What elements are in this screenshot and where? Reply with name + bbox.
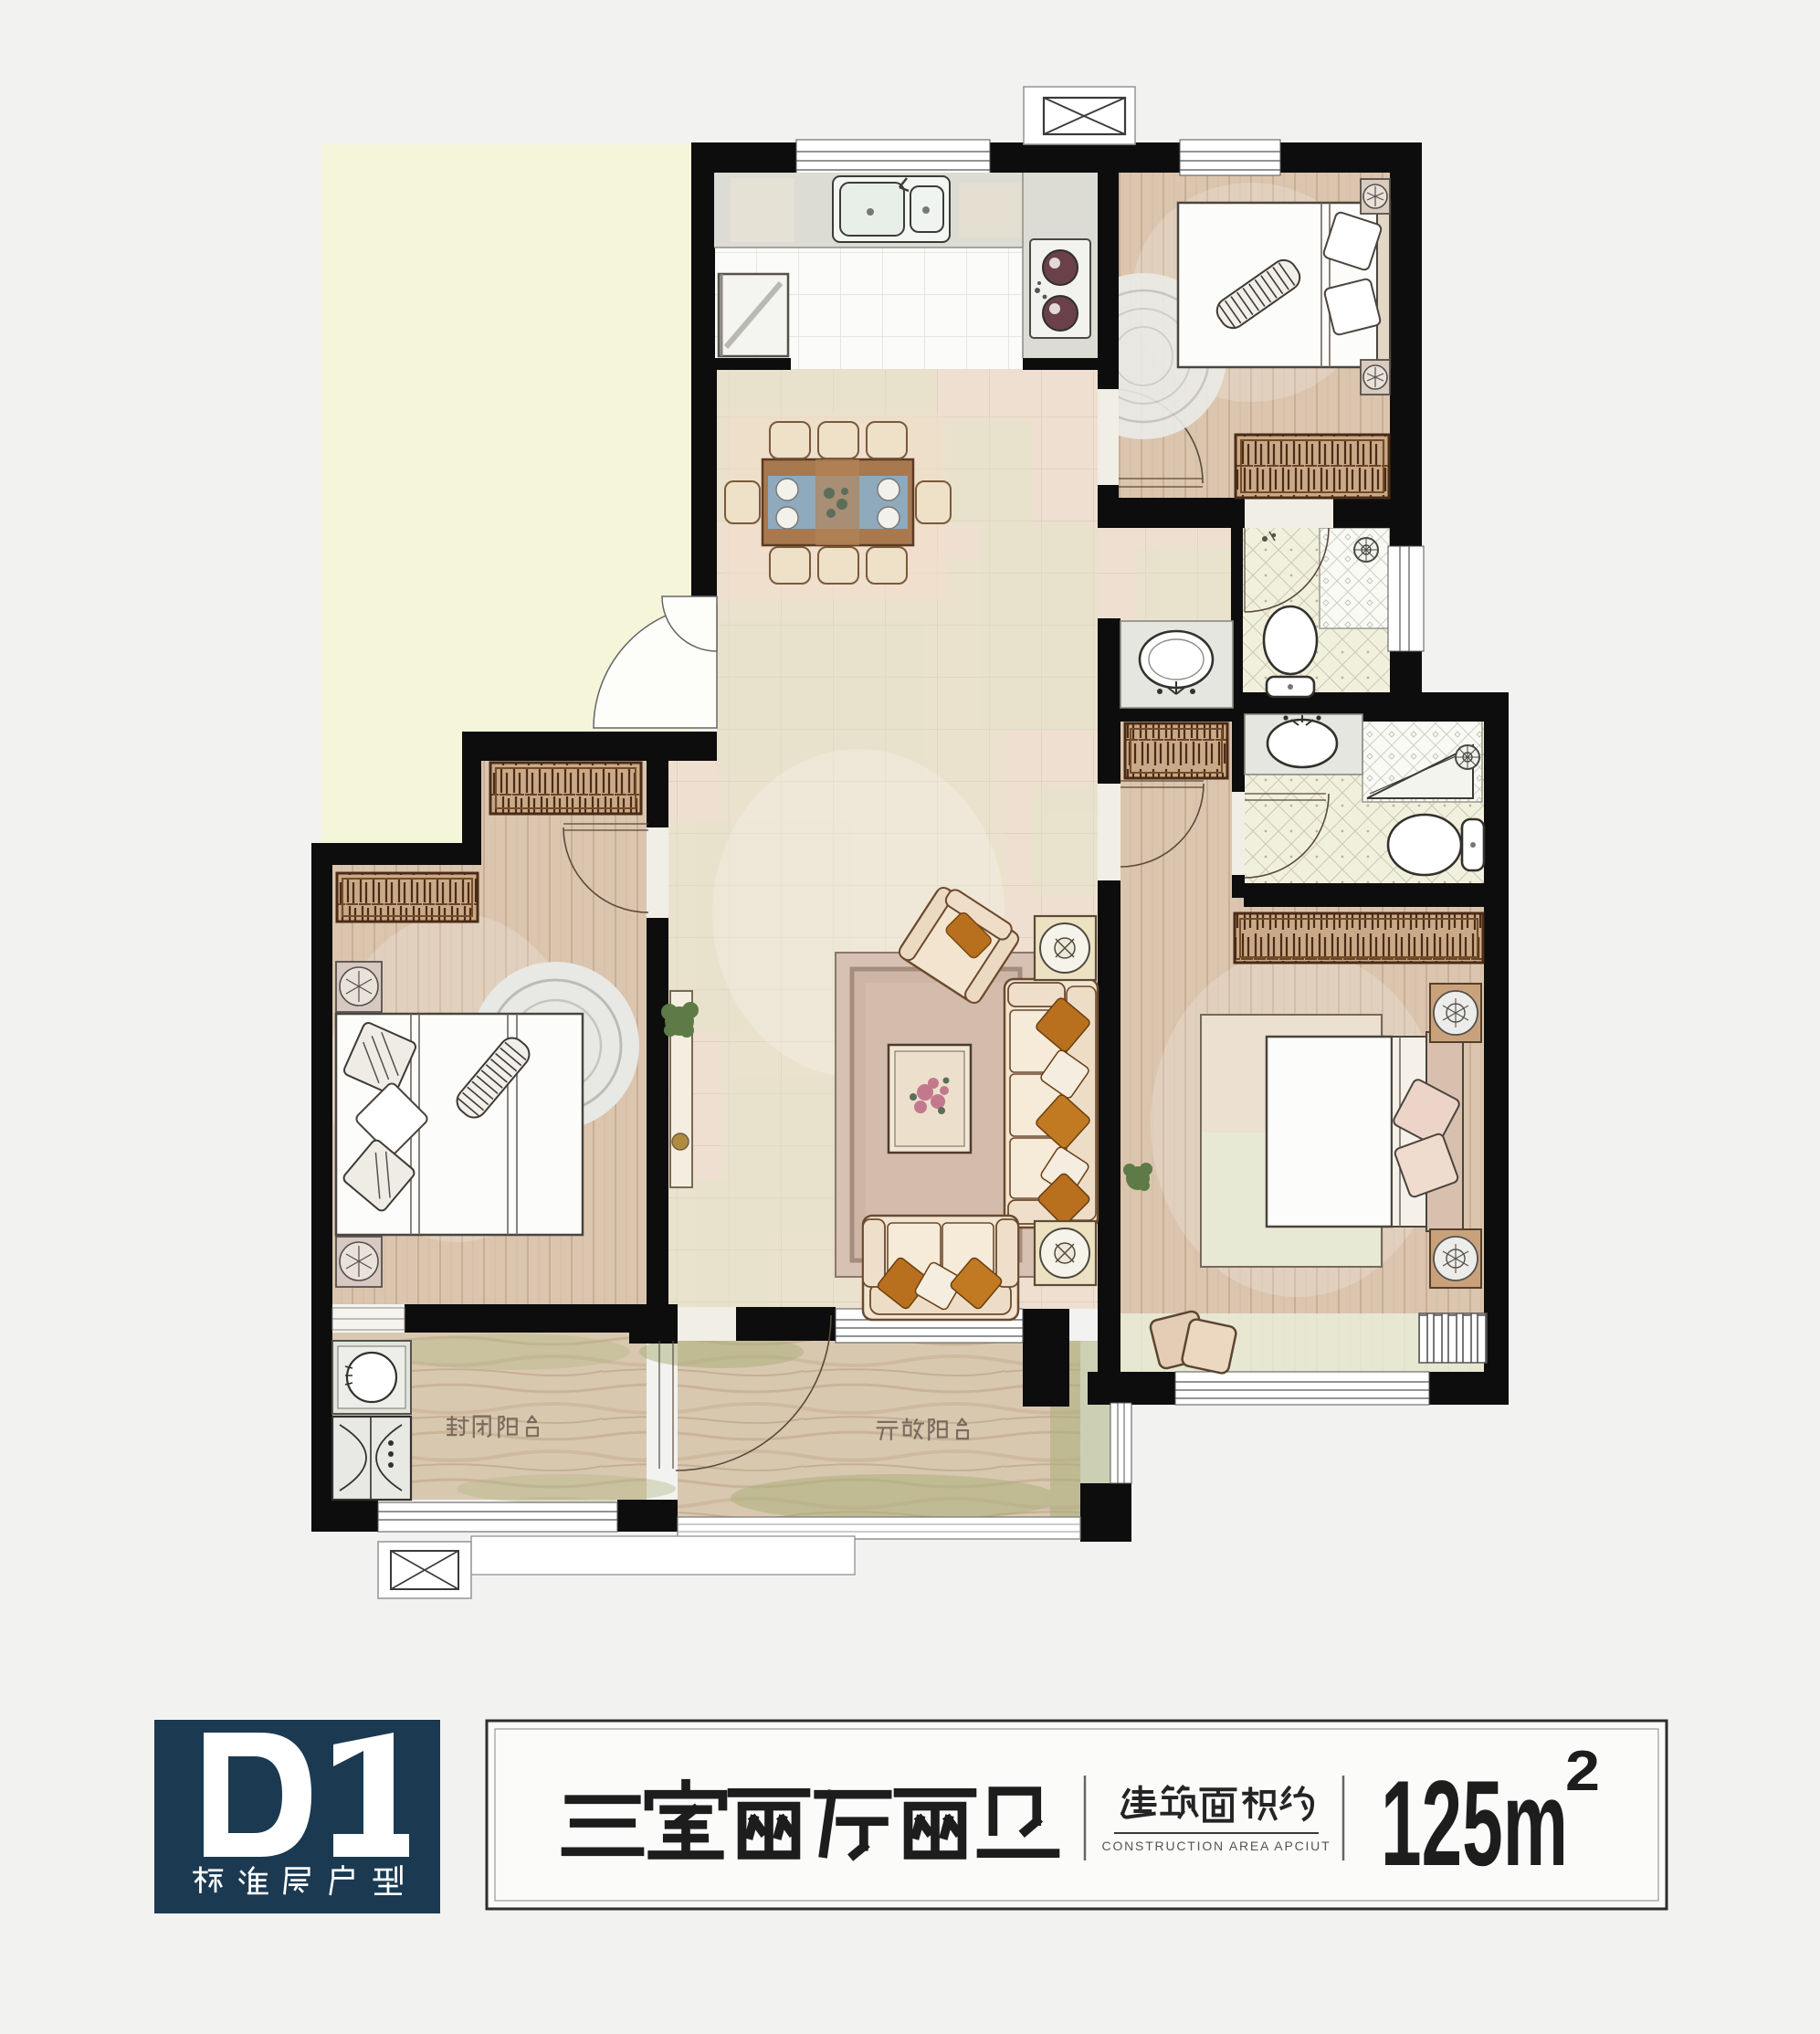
svg-text:125m: 125m bbox=[1381, 1756, 1568, 1892]
svg-text:2: 2 bbox=[1565, 1740, 1600, 1803]
svg-text:CONSTRUCTION AREA APCIUT: CONSTRUCTION AREA APCIUT bbox=[1102, 1839, 1331, 1853]
